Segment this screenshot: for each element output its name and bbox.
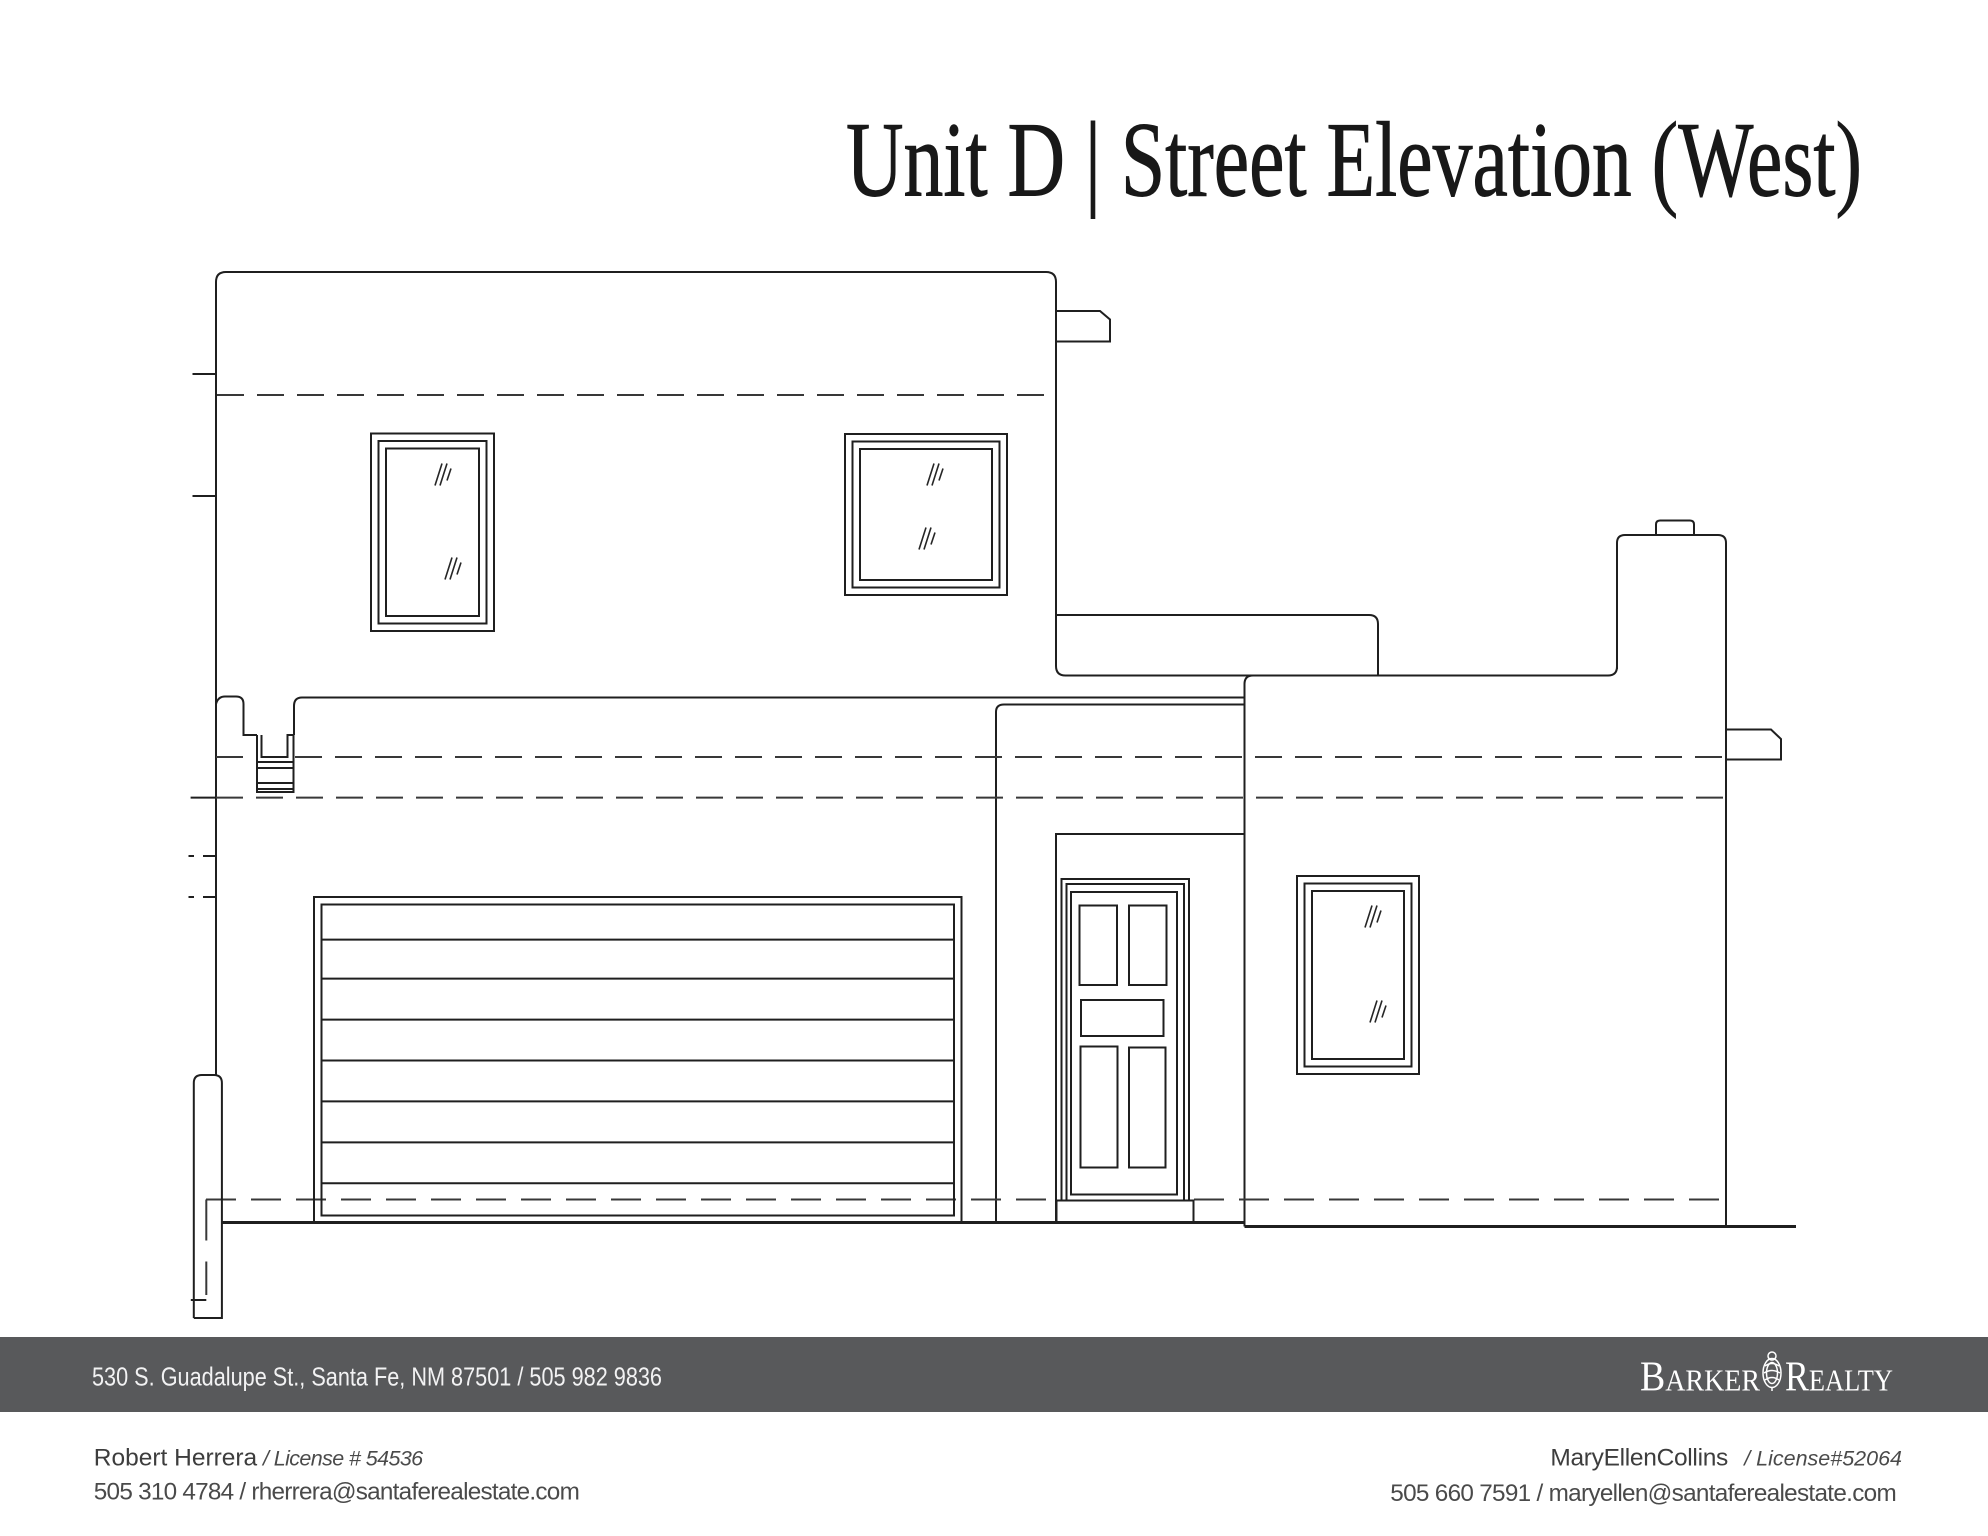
svg-text:Unit D | Street Elevation (Wes: Unit D | Street Elevation (West)	[846, 102, 1862, 220]
svg-text:530 S. Guadalupe St., Santa Fe: 530 S. Guadalupe St., Santa Fe, NM 87501…	[92, 1362, 662, 1392]
svg-text:505 660 7591 / maryellen@santa: 505 660 7591 / maryellen@santaferealesta…	[1390, 1480, 1896, 1507]
svg-text:Robert Herrera: Robert Herrera	[94, 1445, 258, 1472]
svg-text:/ License#52064: / License#52064	[1742, 1447, 1902, 1471]
svg-text:505 310 4784 / rherrera@santaf: 505 310 4784 / rherrera@santaferealestat…	[94, 1479, 579, 1506]
svg-text:MaryEllenCollins: MaryEllenCollins	[1550, 1445, 1728, 1472]
svg-text:/ License # 54536: / License # 54536	[261, 1447, 423, 1471]
